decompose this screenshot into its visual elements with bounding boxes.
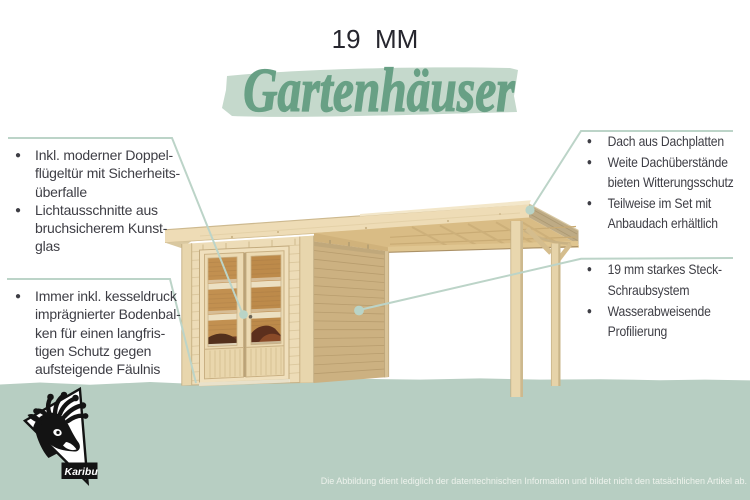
svg-text:Karibu: Karibu <box>65 466 99 478</box>
